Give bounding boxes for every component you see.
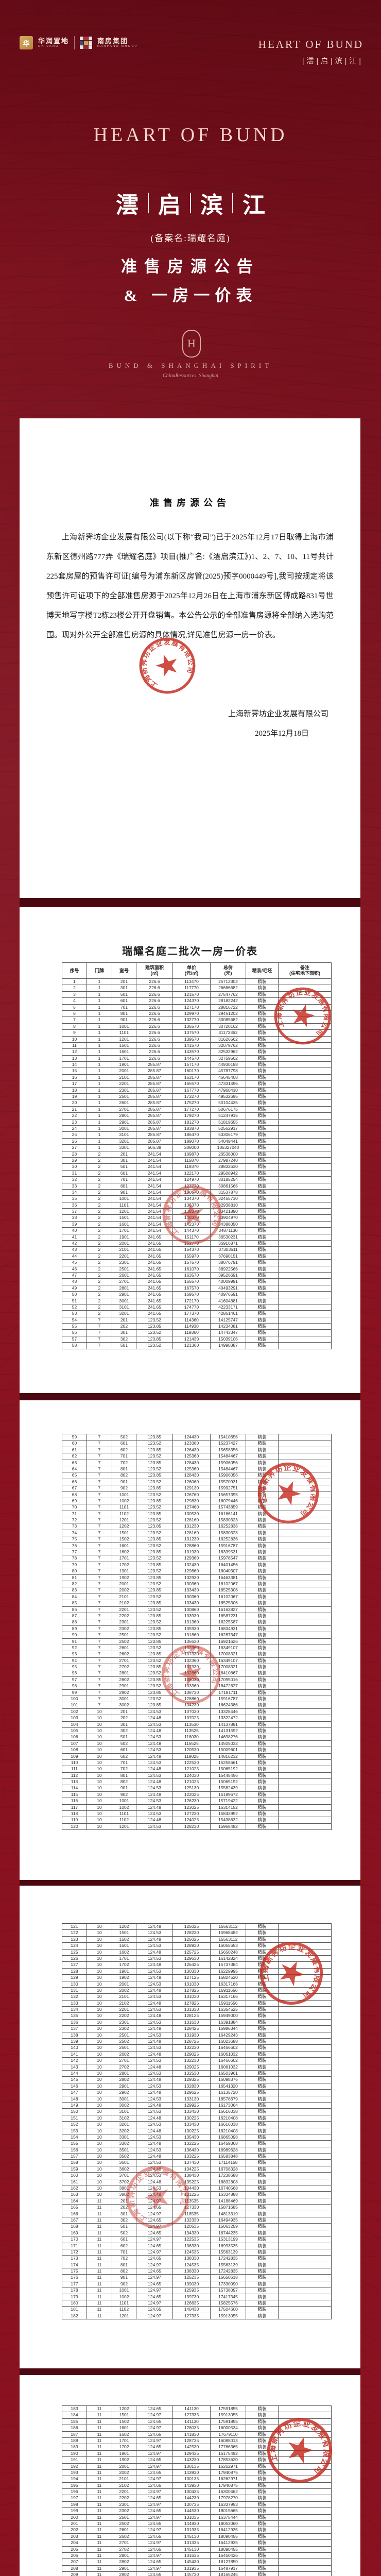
table-cell bbox=[279, 2406, 331, 2412]
table-cell: 精装 bbox=[246, 2058, 279, 2063]
table-cell: 16494935 bbox=[211, 2217, 246, 2223]
table-cell: 183 bbox=[62, 2406, 87, 2412]
table-cell: 83 bbox=[62, 1587, 87, 1593]
table-cell: 精装 bbox=[246, 1587, 279, 1593]
table-cell bbox=[279, 1792, 331, 1798]
table-cell: 501 bbox=[112, 1343, 136, 1348]
table-cell: 129625 bbox=[173, 2090, 211, 2095]
table-cell bbox=[279, 2451, 331, 2456]
table-cell bbox=[279, 2198, 331, 2204]
table-cell: 76 bbox=[62, 1543, 87, 1549]
table-cell bbox=[279, 1785, 331, 1791]
table-cell: 7 bbox=[87, 1343, 112, 1348]
table-cell: 125025 bbox=[173, 1937, 211, 1942]
table-cell: 123.85 bbox=[136, 1523, 173, 1529]
table-cell: 117 bbox=[62, 1805, 87, 1810]
table-cell: 173 bbox=[62, 2256, 87, 2261]
table-cell bbox=[279, 2540, 331, 2546]
table-cell bbox=[279, 1215, 331, 1221]
table-row: 7371202123.8513123016252836精装 bbox=[62, 1523, 331, 1530]
table-cell: 精装 bbox=[246, 2173, 279, 2178]
table-cell: 11 bbox=[87, 2464, 112, 2469]
table-cell: 16401456 bbox=[211, 1562, 246, 1568]
table-row: 9072501123.5213186016287347精装 bbox=[62, 1632, 331, 1638]
table-cell: 901 bbox=[112, 1017, 136, 1023]
table-cell: 1002 bbox=[112, 2294, 136, 2300]
table-cell: 1902 bbox=[112, 1575, 136, 1581]
table-row: 597502123.8512443015410656精装 bbox=[62, 1434, 331, 1440]
table-cell bbox=[279, 2425, 331, 2431]
table-cell: 10 bbox=[87, 1975, 112, 1980]
table-cell: 11 bbox=[87, 2313, 112, 2319]
table-cell: 125935 bbox=[173, 2287, 211, 2293]
table-row: 149103002124.4812992516173064精装 bbox=[62, 2103, 331, 2109]
table-cell: 精装 bbox=[246, 1690, 279, 1696]
table-cell: 精装 bbox=[246, 2432, 279, 2437]
table-cell: 1501 bbox=[112, 1930, 136, 1936]
table-cell: 158 bbox=[62, 2160, 87, 2165]
table-cell: 87 bbox=[62, 1613, 87, 1619]
table-cell: 2201 bbox=[112, 1253, 136, 1259]
table-cell: 123.52 bbox=[136, 1683, 173, 1689]
table-cell: 3802 bbox=[112, 2192, 136, 2197]
table-cell: 45787798 bbox=[211, 1068, 246, 1074]
table-cell: 124.65 bbox=[136, 2406, 173, 2412]
table-cell: 1201 bbox=[112, 1517, 136, 1523]
table-cell bbox=[279, 1037, 331, 1042]
hero-monogram-icon: H bbox=[182, 330, 201, 358]
table-cell: 702 bbox=[112, 2256, 136, 2261]
table-cell: 89 bbox=[62, 1626, 87, 1632]
table-cell: 27547762 bbox=[211, 992, 246, 997]
price-table-title: 瑞耀名庭二批次一房一价表 bbox=[20, 943, 360, 958]
table-cell: 15563139 bbox=[211, 2262, 246, 2268]
table-cell: 7 bbox=[87, 1581, 112, 1587]
table-row: 141102602124.4812902516061032精装 bbox=[62, 2052, 331, 2058]
table-row: 186111601124.9712803516000534精装 bbox=[62, 2425, 331, 2431]
table-cell bbox=[279, 2192, 331, 2197]
table-row: 136102301124.5313163016391884精装 bbox=[62, 2020, 331, 2026]
table-cell: 精装 bbox=[246, 2540, 279, 2546]
table-cell: 46 bbox=[62, 1266, 87, 1272]
table-cell: 241.54 bbox=[136, 1151, 173, 1157]
table-cell: 149 bbox=[62, 2103, 87, 2108]
table-cell: 11 bbox=[87, 2559, 112, 2565]
table-cell bbox=[279, 1581, 331, 1587]
table-cell bbox=[279, 1222, 331, 1227]
table-cell: 84 bbox=[62, 1594, 87, 1600]
table-cell: 14 bbox=[62, 1062, 87, 1067]
table-cell: 30085682 bbox=[211, 1017, 246, 1023]
table-cell: 17679110 bbox=[211, 2432, 246, 2437]
table-row: 1812301285.8716777047960410精装 bbox=[62, 1088, 331, 1094]
table-cell: 171 bbox=[62, 2243, 87, 2249]
table-row: 16911502124.6513433016744235精装 bbox=[62, 2230, 331, 2236]
table-cell: 精装 bbox=[246, 1075, 279, 1080]
table-cell: 10 bbox=[87, 1988, 112, 1993]
table-cell: 124.48 bbox=[136, 1792, 173, 1798]
table-cell: 18 bbox=[62, 1088, 87, 1093]
table-cell bbox=[279, 1228, 331, 1233]
table-cell bbox=[279, 1336, 331, 1342]
table-cell: 精装 bbox=[246, 1937, 279, 1942]
table-cell: 131230 bbox=[173, 1536, 211, 1542]
table-cell: 1202 bbox=[112, 1523, 136, 1529]
table-cell bbox=[279, 2052, 331, 2057]
table-cell: 7 bbox=[87, 1670, 112, 1676]
table-cell: 2 bbox=[87, 1292, 112, 1297]
table-cell: 124.53 bbox=[136, 1785, 173, 1791]
table-cell: 1 bbox=[87, 992, 112, 997]
table-cell: 801 bbox=[112, 1183, 136, 1189]
table-cell: 11 bbox=[87, 2294, 112, 2300]
table-cell: 17242835 bbox=[211, 2256, 246, 2261]
table-cell: 241.65 bbox=[136, 1260, 173, 1265]
table-cell: 10 bbox=[87, 2147, 112, 2153]
table-cell: 16317166 bbox=[211, 1994, 246, 1999]
table-cell bbox=[279, 1594, 331, 1600]
table-cell: 1701 bbox=[112, 1555, 136, 1561]
table-cell: 42 bbox=[62, 1241, 87, 1246]
table-cell: 92 bbox=[62, 1645, 87, 1651]
table-cell: 精装 bbox=[246, 998, 279, 1004]
table-cell: 72 bbox=[62, 1517, 87, 1523]
table-cell: 11 bbox=[87, 2534, 112, 2539]
price-table-card-4: 183111202124.6514113017591855精装184111501… bbox=[20, 2375, 360, 2576]
table-row: 557202123.8511493014234081精装 bbox=[62, 1324, 331, 1330]
table-cell: 123.85 bbox=[136, 1702, 173, 1708]
table-cell: 精装 bbox=[246, 1088, 279, 1093]
table-cell: 124.53 bbox=[136, 2045, 173, 2050]
table-row: 3521001241.5413437032455730精装 bbox=[62, 1196, 331, 1202]
table-cell: 110 bbox=[62, 1760, 87, 1766]
table-cell: 124.48 bbox=[136, 2141, 173, 2146]
table-cell: 10 bbox=[87, 1728, 112, 1734]
table-row: 1011201226.613957031626562精装 bbox=[62, 1037, 331, 1043]
table-cell: 901 bbox=[112, 1479, 136, 1485]
table-cell: 精装 bbox=[246, 1754, 279, 1759]
table-cell bbox=[279, 1549, 331, 1555]
table-cell: 150 bbox=[62, 2109, 87, 2114]
table-cell: 1101 bbox=[112, 1202, 136, 1208]
table-cell bbox=[279, 1690, 331, 1696]
table-cell: 91 bbox=[62, 1639, 87, 1645]
table-cell bbox=[279, 2547, 331, 2552]
table-cell: 241.54 bbox=[136, 1228, 173, 1233]
table-cell: 7 bbox=[87, 1651, 112, 1657]
table-cell: 155 bbox=[62, 2141, 87, 2146]
table-cell bbox=[279, 1088, 331, 1093]
table-cell: 3001 bbox=[112, 1126, 136, 1131]
table-row: 21301226.611777026686682精装 bbox=[62, 985, 331, 991]
table-cell: 114930 bbox=[173, 1324, 211, 1329]
table-cell: 123.85 bbox=[136, 1690, 173, 1696]
table-cell bbox=[279, 1209, 331, 1214]
table-cell bbox=[279, 1824, 331, 1829]
table-cell bbox=[279, 2313, 331, 2319]
table-cell: 601 bbox=[112, 1171, 136, 1176]
table-cell bbox=[279, 2483, 331, 2488]
table-cell: 123.85 bbox=[136, 1639, 173, 1645]
table-cell: 16834931 bbox=[211, 1626, 246, 1632]
table-cell: 精装 bbox=[246, 2489, 279, 2495]
table-cell: 16225587 bbox=[211, 1619, 246, 1625]
table-row: 202112601124.9713133516412935精装 bbox=[62, 2527, 331, 2533]
table-cell: 95 bbox=[62, 1664, 87, 1670]
table-cell: 178 bbox=[62, 2287, 87, 2293]
table-cell bbox=[279, 2256, 331, 2261]
table-cell: 28816722 bbox=[211, 1005, 246, 1010]
table-cell: 169 bbox=[62, 2230, 87, 2236]
table-cell: 2302 bbox=[112, 2508, 136, 2514]
table-cell: 124.48 bbox=[136, 2192, 173, 2197]
table-cell: 精装 bbox=[246, 2109, 279, 2114]
table-cell: 29451202 bbox=[211, 1011, 246, 1016]
table-cell: 128430 bbox=[173, 1460, 211, 1466]
table-cell: 7 bbox=[87, 1492, 112, 1498]
table-row: 197112202124.6514423017978270精装 bbox=[62, 2495, 331, 2501]
table-cell: 901 bbox=[112, 1190, 136, 1195]
table-row: 143102702124.4812902516061032精装 bbox=[62, 2064, 331, 2071]
table-row: 135102202124.4812812515949000精装 bbox=[62, 2013, 331, 2019]
table-cell bbox=[279, 1196, 331, 1201]
table-cell: 194 bbox=[62, 2476, 87, 2482]
table-cell: 177 bbox=[62, 2281, 87, 2287]
table-cell: 精装 bbox=[246, 2287, 279, 2293]
table-cell: 32759562 bbox=[211, 1056, 246, 1061]
table-cell: 134430 bbox=[173, 2185, 211, 2191]
table-row: 1211601226.614357032532962精装 bbox=[62, 1049, 331, 1055]
table-cell: 130360 bbox=[173, 1594, 211, 1600]
table-cell: 62 bbox=[62, 1453, 87, 1459]
table-cell bbox=[279, 1683, 331, 1689]
table-cell: 16466602 bbox=[211, 2058, 246, 2063]
table-cell bbox=[279, 2064, 331, 2070]
table-cell: 16337953 bbox=[211, 2502, 246, 2507]
table-row: 3821501241.5414037033904970精装 bbox=[62, 1215, 331, 1221]
table-row: 117101002124.4812302515314152精装 bbox=[62, 1805, 331, 1811]
table-cell: 1901 bbox=[112, 2451, 136, 2456]
table-cell: 3302 bbox=[112, 2141, 136, 2146]
table-row: 4222001241.6515277036916871精装 bbox=[62, 1241, 331, 1247]
table-cell bbox=[279, 985, 331, 991]
table-cell: 124.48 bbox=[136, 2064, 173, 2070]
table-cell: 129325 bbox=[173, 2077, 211, 2082]
table-cell: 184 bbox=[62, 2412, 87, 2418]
table-cell: 124.97 bbox=[136, 2198, 173, 2204]
table-cell: 1 bbox=[87, 1075, 112, 1080]
table-cell: 130 bbox=[62, 1981, 87, 1987]
table-cell: 15484467 bbox=[211, 1453, 246, 1459]
table-cell bbox=[279, 2141, 331, 2146]
table-cell: 47 bbox=[62, 1273, 87, 1278]
table-cell: 2 bbox=[87, 1164, 112, 1170]
table-cell: 106 bbox=[62, 1734, 87, 1740]
table-row: 125101602124.4812572515650248精装 bbox=[62, 1950, 331, 1956]
table-cell: 126060 bbox=[173, 1479, 211, 1485]
table-cell: 113525 bbox=[173, 1728, 211, 1734]
table-cell bbox=[279, 1068, 331, 1074]
table-cell: 1 bbox=[87, 1132, 112, 1138]
table-cell: 50104435 bbox=[211, 1100, 246, 1106]
table-cell: 精装 bbox=[246, 2090, 279, 2095]
table-cell bbox=[279, 1253, 331, 1259]
table-cell: 3 bbox=[62, 992, 87, 997]
table-row: 156103501124.5313643016989628精装 bbox=[62, 2147, 331, 2154]
table-cell: 10 bbox=[87, 2007, 112, 2012]
table-cell: 精装 bbox=[246, 1817, 279, 1823]
table-cell: 15009601 bbox=[211, 1747, 246, 1753]
table-cell: 124.53 bbox=[136, 1824, 173, 1829]
table-cell: 124.65 bbox=[136, 2508, 173, 2514]
table-cell: 1602 bbox=[112, 1950, 136, 1955]
table-cell bbox=[279, 2572, 331, 2576]
table-cell: 129025 bbox=[173, 2052, 211, 2057]
table-cell: 241.54 bbox=[136, 1196, 173, 1201]
table-cell bbox=[279, 998, 331, 1004]
table-cell: 15978547 bbox=[211, 1555, 246, 1561]
table-cell: 145 bbox=[62, 2077, 87, 2082]
table-cell: 141570 bbox=[173, 1043, 211, 1048]
table-cell: 130360 bbox=[173, 1581, 211, 1587]
table-cell: 120530 bbox=[173, 1747, 211, 1753]
table-cell: 2702 bbox=[112, 2547, 136, 2552]
brand-en: HEART OF BUND bbox=[258, 38, 363, 51]
hero-title-cn: 澐启滨江 bbox=[0, 187, 381, 219]
table-cell bbox=[279, 2083, 331, 2089]
table-cell: 精装 bbox=[246, 2077, 279, 2082]
table-cell: 702 bbox=[112, 1460, 136, 1466]
table-cell: 1001 bbox=[112, 1492, 136, 1498]
table-cell: 172170 bbox=[173, 1298, 211, 1304]
table-cell: 2001 bbox=[112, 1068, 136, 1074]
table-cell: 2602 bbox=[112, 2052, 136, 2057]
table-cell: 701 bbox=[112, 1005, 136, 1010]
table-cell: 135 bbox=[62, 2013, 87, 2019]
table-cell: 14188469 bbox=[211, 2198, 246, 2204]
price-table: 121101202124.4812502515563112精装122101501… bbox=[62, 1923, 332, 2319]
table-cell: 226.6 bbox=[136, 1049, 173, 1055]
table-cell: 143570 bbox=[173, 1049, 211, 1055]
table-cell: 123.85 bbox=[136, 1651, 173, 1657]
table-cell: 精装 bbox=[246, 1994, 279, 1999]
table-cell: 17114158 bbox=[211, 2160, 246, 2165]
table-cell: 123.85 bbox=[136, 1562, 173, 1568]
price-table: 183111202124.6514113017591855精装184111501… bbox=[62, 2405, 332, 2576]
table-cell: 10 bbox=[87, 1779, 112, 1785]
table-cell: 精装 bbox=[246, 2502, 279, 2507]
table-cell: 241.54 bbox=[136, 1164, 173, 1170]
table-cell: 123.85 bbox=[136, 1336, 173, 1342]
table-row: 16411201124.9711353514188469精装 bbox=[62, 2198, 331, 2205]
table-cell: 126230 bbox=[173, 1798, 211, 1804]
table-cell: 16578679 bbox=[211, 2096, 246, 2102]
table-row: 145102802124.4812932516098376精装 bbox=[62, 2077, 331, 2083]
table-cell: 1 bbox=[87, 1043, 112, 1048]
table-cell: 80 bbox=[62, 1568, 87, 1574]
table-cell: 53 bbox=[62, 1311, 87, 1316]
table-row: 139102502124.4812872516023688精装 bbox=[62, 2039, 331, 2045]
table-cell: 10 bbox=[87, 2026, 112, 2031]
table-cell: 10 bbox=[87, 1805, 112, 1810]
table-cell bbox=[279, 2045, 331, 2050]
table-cell: 124.97 bbox=[136, 2275, 173, 2280]
table-row: 627701123.5212536015484467精装 bbox=[62, 1453, 331, 1460]
table-cell: 131230 bbox=[173, 1523, 211, 1529]
table-cell: 124.53 bbox=[136, 2173, 173, 2178]
table-row: 8071901123.5212986016040307精装 bbox=[62, 1568, 331, 1574]
table-cell: 118030 bbox=[173, 1734, 211, 1740]
table-cell bbox=[279, 1728, 331, 1734]
table-cell: 精装 bbox=[246, 1043, 279, 1048]
table-cell: 精装 bbox=[246, 2179, 279, 2185]
table-cell: 58 bbox=[62, 1343, 87, 1348]
table-cell: 128160 bbox=[173, 1517, 211, 1523]
table-row: 10173002123.8513423016624386精装 bbox=[62, 1702, 331, 1708]
table-cell: 124.97 bbox=[136, 2527, 173, 2533]
table-cell: 精装 bbox=[246, 1766, 279, 1772]
table-cell: 精装 bbox=[246, 1068, 279, 1074]
table-row: 647801123.5212536015484467精装 bbox=[62, 1466, 331, 1472]
table-cell: 2901 bbox=[112, 2083, 136, 2089]
table-cell: 精装 bbox=[246, 1304, 279, 1310]
table-cell: 146 bbox=[62, 2083, 87, 2089]
table-cell: 124.65 bbox=[136, 2294, 173, 2300]
table-cell: 601 bbox=[112, 998, 136, 1004]
table-row: 2112701285.8717727050676175精装 bbox=[62, 1107, 331, 1113]
table-row: 207112802124.6514543018127850精装 bbox=[62, 2559, 331, 2565]
table-cell: 精装 bbox=[246, 2185, 279, 2191]
table-cell: 802 bbox=[112, 2268, 136, 2274]
table-row: 180111101124.9712663515825576精装 bbox=[62, 2300, 331, 2307]
table-cell: 123.85 bbox=[136, 1536, 173, 1542]
table-cell: 10 bbox=[62, 1037, 87, 1042]
table-cell: 601 bbox=[112, 1440, 136, 1446]
table-cell: 138330 bbox=[173, 2268, 211, 2274]
hero-title-char: 滨 bbox=[200, 187, 223, 219]
table-cell: 精装 bbox=[246, 2039, 279, 2044]
table-cell bbox=[279, 1969, 331, 1974]
table-cell: 124.48 bbox=[136, 2154, 173, 2159]
table-cell: 124.97 bbox=[136, 2262, 173, 2268]
table-cell: 15484467 bbox=[211, 1466, 246, 1472]
table-cell: 1201 bbox=[112, 1209, 136, 1214]
table-cell: 124970 bbox=[173, 1177, 211, 1182]
table-cell: 38 bbox=[62, 1215, 87, 1221]
table-cell: 802 bbox=[112, 1472, 136, 1478]
table-cell: 123.85 bbox=[136, 1664, 173, 1670]
table-cell: 82 bbox=[62, 1581, 87, 1587]
table-cell bbox=[279, 1924, 331, 1929]
table-cell bbox=[279, 2249, 331, 2255]
table-cell: 130330 bbox=[173, 1969, 211, 1974]
table-cell: 109 bbox=[62, 1754, 87, 1759]
price-table: 序号门牌室号建筑面积 (㎡)单价 (元/㎡)总价 (元)精装/毛坯备注 (住宅地… bbox=[62, 962, 332, 1349]
table-cell: 3301 bbox=[112, 2134, 136, 2140]
table-cell: 1001 bbox=[112, 2287, 136, 2293]
cr-land-logo-sub: CR LAND bbox=[38, 45, 69, 48]
table-cell: 15650248 bbox=[211, 1950, 246, 1955]
table-row: 137102302124.4812842515986344精装 bbox=[62, 2026, 331, 2032]
table-cell: 14125747 bbox=[211, 1317, 246, 1323]
table-cell: 11 bbox=[87, 2211, 112, 2217]
table-cell: 精装 bbox=[246, 2495, 279, 2501]
table-cell: 131330 bbox=[173, 2007, 211, 2012]
table-cell: 28 bbox=[62, 1151, 87, 1157]
table-cell: 124.48 bbox=[136, 1715, 173, 1721]
table-cell: 7 bbox=[87, 1434, 112, 1440]
table-cell: 1902 bbox=[112, 1975, 136, 1980]
